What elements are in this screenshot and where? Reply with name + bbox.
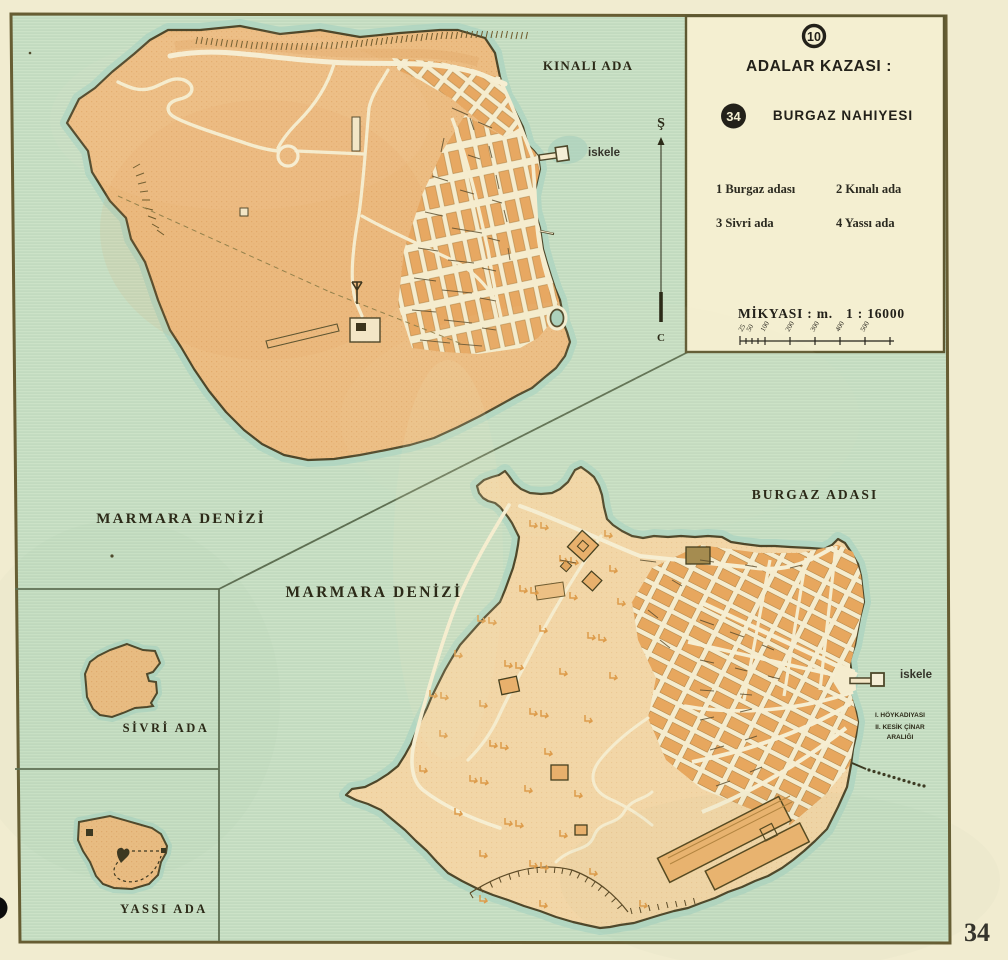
- svg-text:BURGAZ NAHIYESI: BURGAZ NAHIYESI: [773, 108, 913, 123]
- svg-text:I. HÖYKADIYASI: I. HÖYKADIYASI: [875, 710, 925, 719]
- svg-text:1 : 16000: 1 : 16000: [846, 306, 905, 321]
- svg-text:ARALIĞI: ARALIĞI: [887, 732, 914, 741]
- svg-text:SİVRİ ADA: SİVRİ ADA: [123, 721, 210, 735]
- svg-text:34: 34: [726, 109, 741, 124]
- svg-text:C: C: [657, 332, 665, 344]
- svg-text:YASSI ADA: YASSI ADA: [120, 902, 208, 916]
- svg-text:3 Sivri ada: 3 Sivri ada: [716, 216, 774, 230]
- svg-text:Ş: Ş: [657, 116, 665, 131]
- svg-text:II. KESİK ÇİNAR: II. KESİK ÇİNAR: [875, 723, 925, 731]
- svg-text:1 Burgaz adası: 1 Burgaz adası: [716, 182, 796, 196]
- svg-text:KINALI ADA: KINALI ADA: [543, 58, 633, 73]
- svg-text:MARMARA DENİZİ: MARMARA DENİZİ: [96, 510, 266, 527]
- svg-text:iskele: iskele: [900, 669, 932, 681]
- svg-text:MİKYASI : m.: MİKYASI : m.: [738, 306, 833, 321]
- svg-text:10: 10: [807, 30, 821, 44]
- svg-text:34: 34: [964, 918, 990, 947]
- svg-text:4 Yassı ada: 4 Yassı ada: [836, 216, 895, 230]
- svg-text:2 Kınalı ada: 2 Kınalı ada: [836, 182, 902, 196]
- svg-text:iskele: iskele: [588, 147, 620, 159]
- svg-text:MARMARA DENİZİ: MARMARA DENİZİ: [286, 584, 463, 601]
- svg-text:ADALAR KAZASI :: ADALAR KAZASI :: [746, 58, 892, 75]
- svg-text:BURGAZ ADASI: BURGAZ ADASI: [752, 487, 878, 502]
